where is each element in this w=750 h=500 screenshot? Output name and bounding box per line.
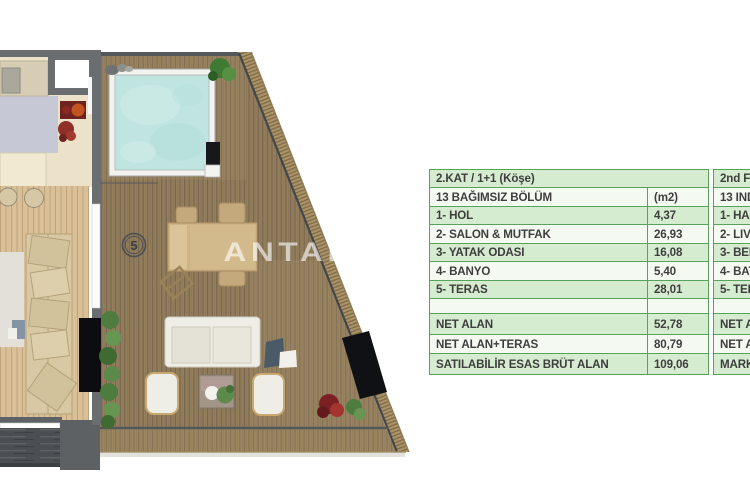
svg-text:5: 5 [130, 238, 137, 253]
svg-text:ANTAL: ANTAL [223, 237, 351, 267]
